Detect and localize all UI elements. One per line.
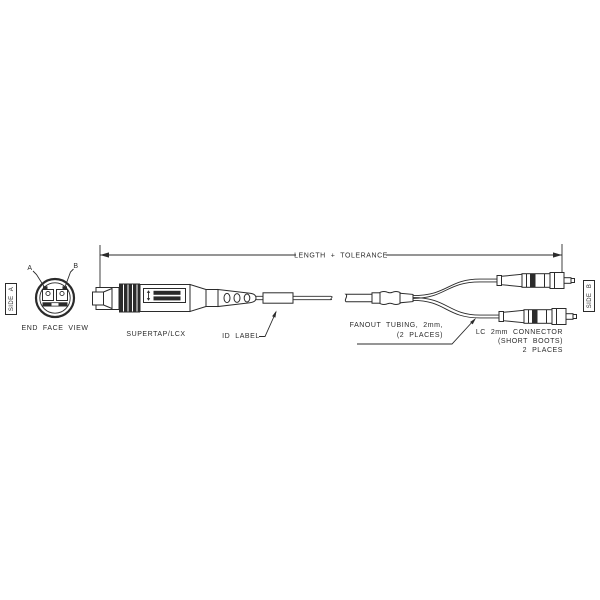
ferrule-a <box>46 291 50 295</box>
side-a-marker: SIDE A <box>6 284 17 315</box>
lc-callout-line1: LC 2mm CONNECTOR <box>476 329 563 336</box>
length-dimension: LENGTH + TOLERANCE <box>100 244 562 287</box>
fanout-collar <box>372 293 380 303</box>
supertap-callout: SUPERTAP/LCX <box>126 331 185 338</box>
id-label-sleeve <box>263 293 293 303</box>
fanout-tube-lower <box>413 298 501 318</box>
dimension-arrow-right <box>553 252 562 257</box>
end-face-view: A B END FACE VIEW <box>22 263 89 332</box>
connector-outer-ring <box>36 279 74 317</box>
leader-a <box>33 271 45 288</box>
end-face-caption: END FACE VIEW <box>22 325 89 332</box>
boot-collar <box>206 290 218 307</box>
lc-callout-line2: (SHORT BOOTS) <box>498 338 563 345</box>
side-a-label: SIDE A <box>9 287 15 311</box>
jacket-segment <box>345 294 372 301</box>
side-b-marker: SIDE B <box>584 281 595 312</box>
lc-connector-upper <box>497 273 575 289</box>
fanout-tube-upper <box>413 279 499 298</box>
cable-assembly-drawing: LENGTH + TOLERANCE SIDE A SIDE B A B END… <box>0 0 600 600</box>
fanout-body <box>380 292 400 305</box>
fanout-taper <box>400 293 413 303</box>
id-label-arrow <box>272 311 276 318</box>
callouts: SUPERTAP/LCX ID LABEL FANOUT TUBING, 2mm… <box>126 311 563 355</box>
fanout-callout-line1: FANOUT TUBING, 2mm, <box>350 322 443 329</box>
side-b-label: SIDE B <box>587 284 593 309</box>
fanout-callout-line2: (2 PLACES) <box>397 332 443 339</box>
port-a-label: A <box>27 265 32 272</box>
body-taper <box>190 285 206 312</box>
key-tab-a <box>43 286 48 290</box>
port-b-label: B <box>73 263 78 270</box>
drawing-canvas: LENGTH + TOLERANCE SIDE A SIDE B A B END… <box>0 0 600 600</box>
dimension-label: LENGTH + TOLERANCE <box>294 253 388 260</box>
ferrule-b <box>60 291 64 295</box>
dimension-arrow-left <box>100 252 109 257</box>
cable-section <box>256 293 372 303</box>
fanout-assembly <box>372 279 501 318</box>
id-label-callout: ID LABEL <box>222 333 260 340</box>
unlock-text-mark <box>154 296 181 300</box>
lc-callout-line3: 2 PLACES <box>523 347 563 354</box>
lc-connector-lower <box>499 309 577 325</box>
latch-tip <box>93 292 104 305</box>
break-line-left <box>331 296 332 299</box>
lock-text-mark <box>154 291 181 295</box>
supertap-connector <box>93 284 257 313</box>
